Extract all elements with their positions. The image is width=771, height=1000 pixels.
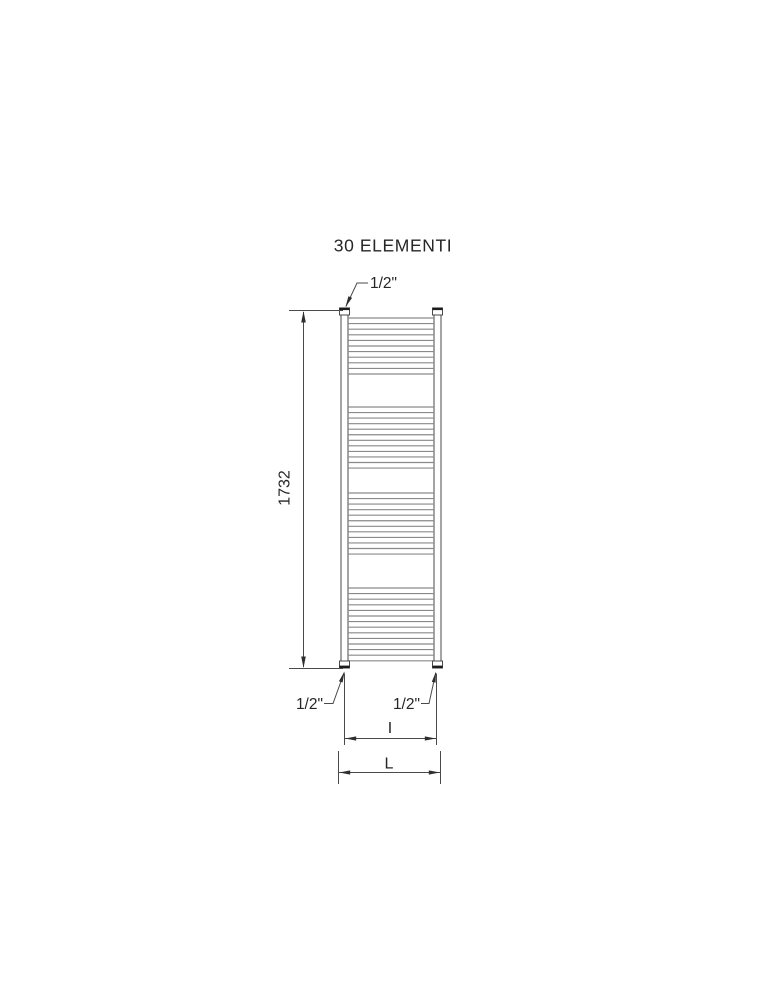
bottom-left-connection-label: 1/2" [296, 696, 323, 713]
bottom-right-cap [433, 661, 443, 668]
outer-width-dimension: L [339, 751, 441, 784]
bottom-right-leader-arrow-icon [432, 672, 436, 683]
bottom-right-leader-line [421, 673, 436, 704]
inner-width-arrow-right-icon [425, 736, 436, 740]
height-arrow-down-icon [301, 657, 306, 669]
top-connection-callout: 1/2" [346, 275, 398, 307]
inner-width-label: I [388, 720, 392, 737]
left-rail [341, 309, 348, 667]
height-dimension: 1732 [277, 311, 344, 669]
height-value: 1732 [277, 470, 294, 506]
bottom-right-connection-label: 1/2" [393, 696, 420, 713]
drawing-page: 30 ELEMENTI [0, 0, 771, 1000]
bottom-left-connection-callout: 1/2" [296, 672, 345, 714]
height-arrow-up-icon [301, 311, 306, 323]
bottom-left-cap [340, 661, 350, 668]
top-leader-arrow-icon [346, 296, 353, 307]
drawing-title: 30 ELEMENTI [334, 236, 452, 256]
bottom-left-leader-line [324, 673, 344, 704]
tube-lines [348, 318, 434, 661]
outer-width-arrow-left-icon [339, 770, 350, 774]
outer-width-label: L [385, 756, 394, 773]
inner-width-arrow-left-icon [345, 736, 356, 740]
outer-width-arrow-right-icon [429, 770, 440, 774]
bottom-left-leader-arrow-icon [339, 672, 345, 683]
right-rail [434, 309, 441, 667]
top-right-cap [433, 308, 443, 316]
inner-width-dimension: I [345, 674, 437, 746]
top-left-cap [340, 308, 350, 316]
top-connection-label: 1/2" [370, 275, 397, 292]
radiator-technical-drawing: 30 ELEMENTI [0, 0, 771, 1000]
top-leader-line [346, 283, 368, 307]
bottom-right-connection-callout: 1/2" [393, 672, 436, 714]
radiator-body [340, 308, 443, 669]
